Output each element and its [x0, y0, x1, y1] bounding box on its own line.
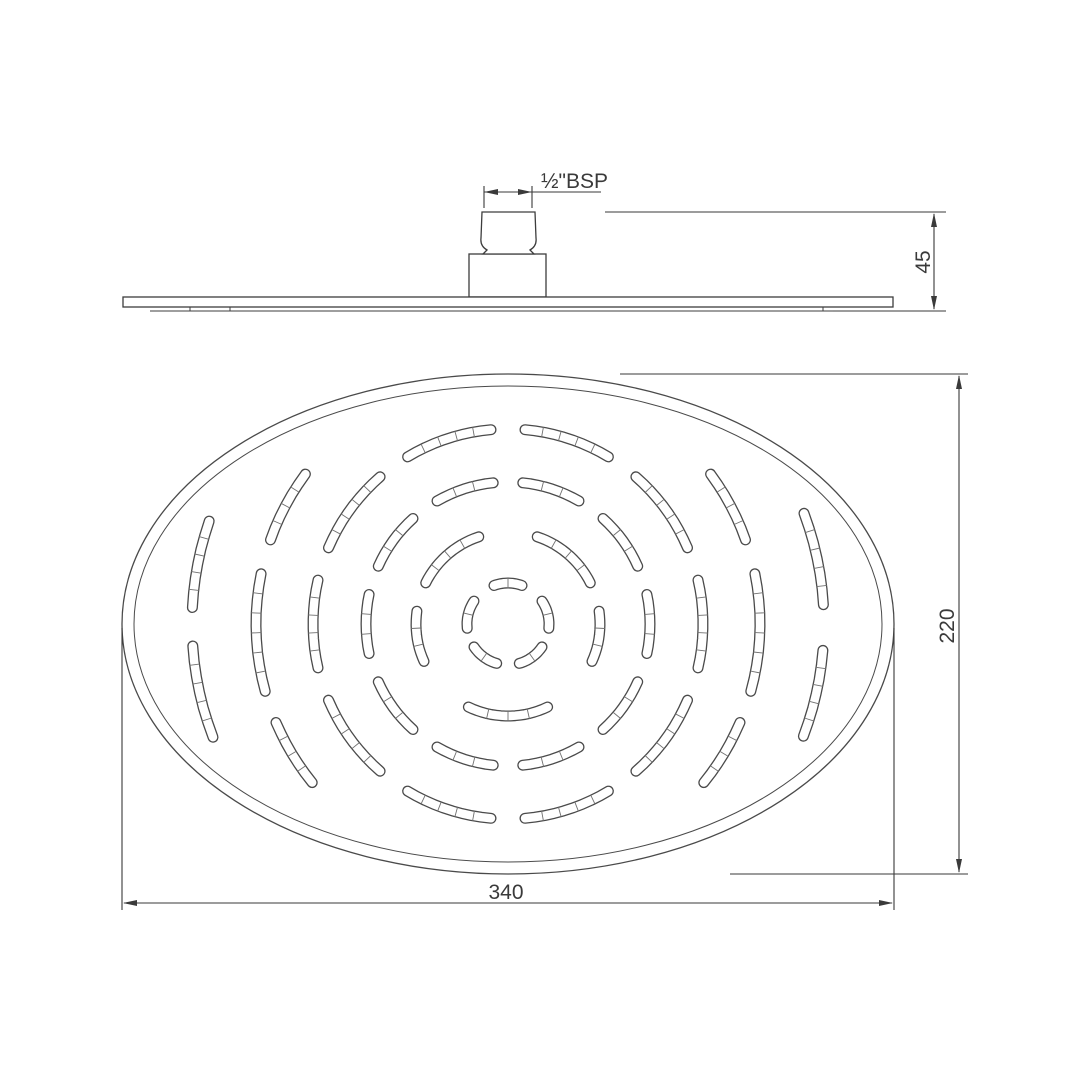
slot-tick	[698, 633, 708, 634]
bsp-arrow-left	[484, 189, 498, 195]
side-view	[123, 212, 893, 311]
dimension-bsp: ½"BSP	[484, 170, 608, 208]
slot-fill	[313, 580, 318, 668]
w340-arrow-right	[879, 900, 893, 906]
slot-tick	[411, 628, 421, 629]
connector-base	[469, 254, 546, 297]
w340-arrow-left	[123, 900, 137, 906]
plate-profile	[123, 297, 893, 307]
bsp-label: ½"BSP	[541, 170, 608, 193]
h45-label: 45	[912, 250, 935, 273]
slot-fill	[647, 595, 650, 654]
technical-drawing: ½"BSP 45 220 340	[0, 0, 1080, 1080]
face-view	[122, 374, 894, 874]
h220-arrow-top	[956, 375, 962, 389]
slot-tick	[698, 615, 708, 616]
connector-nipple	[481, 212, 536, 254]
slot-tick	[595, 628, 605, 629]
h220-label: 220	[936, 608, 959, 643]
drawing-page: ½"BSP 45 220 340	[0, 0, 1080, 1080]
slot-tick	[308, 615, 318, 616]
h45-arrow-top	[931, 213, 937, 227]
slot-tick	[308, 633, 318, 634]
slot-fill	[698, 580, 703, 668]
dimension-45: 45	[605, 212, 946, 311]
bsp-arrow-right	[518, 189, 532, 195]
h220-arrow-bottom	[956, 859, 962, 873]
slot-fill	[366, 595, 369, 654]
face-outer-rim	[122, 374, 894, 874]
h45-arrow-bottom	[931, 296, 937, 310]
w340-label: 340	[488, 881, 523, 904]
